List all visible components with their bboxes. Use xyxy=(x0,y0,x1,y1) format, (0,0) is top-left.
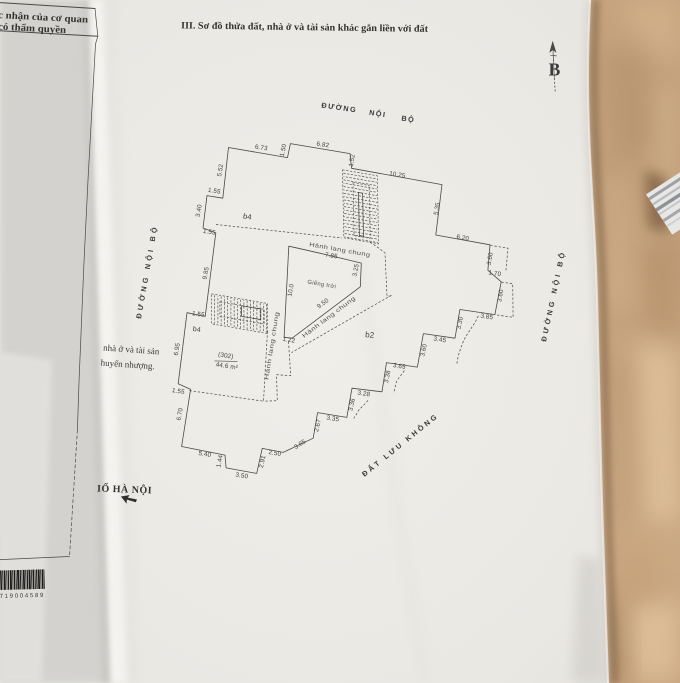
svg-text:b2: b2 xyxy=(365,330,375,340)
svg-text:B: B xyxy=(549,60,561,80)
svg-text:719004589: 719004589 xyxy=(0,593,45,600)
svg-text:BỘ: BỘ xyxy=(401,114,416,125)
svg-text:b4: b4 xyxy=(242,211,252,221)
svg-text:b4: b4 xyxy=(192,326,201,334)
